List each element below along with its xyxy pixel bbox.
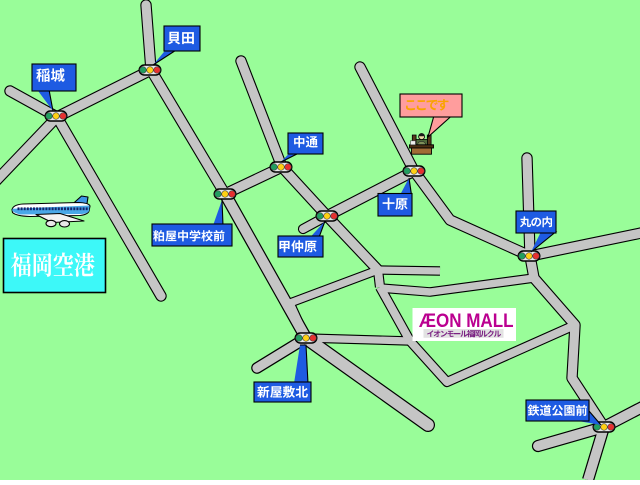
svg-text:ÆON MALL: ÆON MALL (419, 310, 514, 332)
